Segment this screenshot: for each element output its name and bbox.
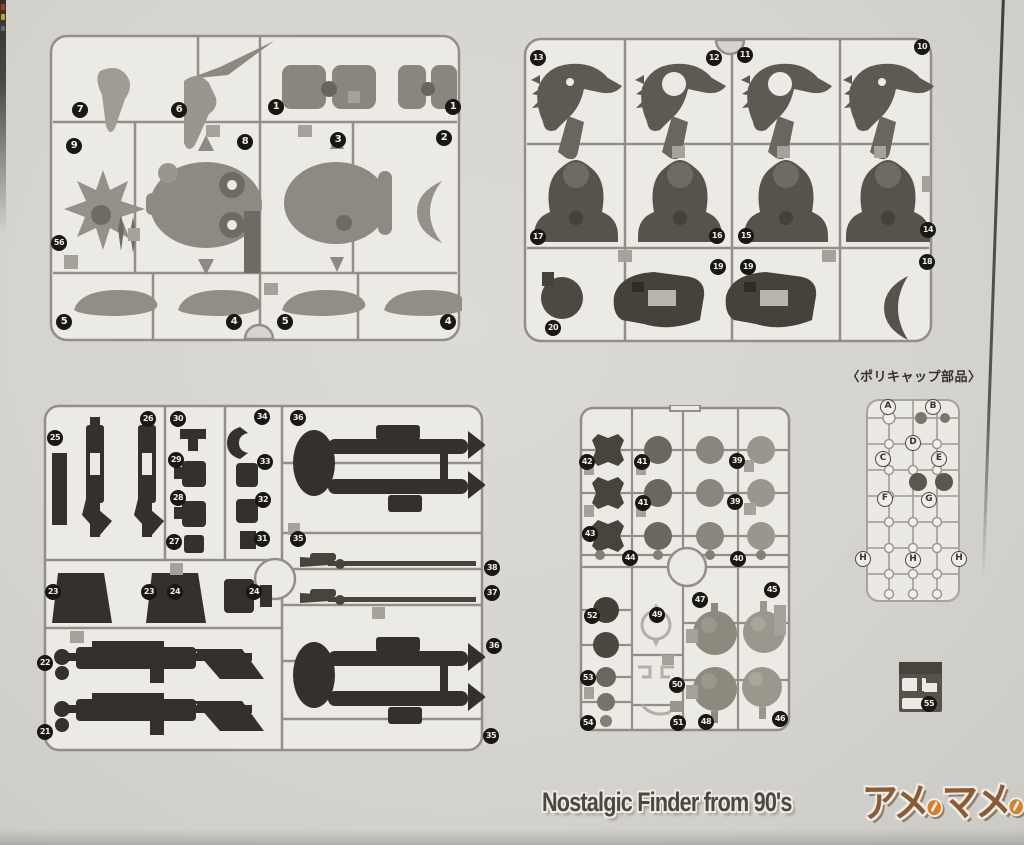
part-number-badge: 34 [254, 409, 270, 425]
part-number-badge: 47 [692, 592, 708, 608]
part-number-badge: 36 [290, 410, 306, 426]
part-number-badge: 10 [914, 39, 930, 55]
part-number-badge: 42 [579, 454, 595, 470]
part-number-badge: 38 [484, 560, 500, 576]
part-number-badge: 32 [255, 492, 271, 508]
part-number-badge: 16 [709, 228, 725, 244]
watermark: Nostalgic Finder from 90's アメ マメ バー [542, 783, 1024, 825]
polycap-letter-badge: B [925, 399, 941, 415]
part-number-badge: 55 [921, 696, 937, 712]
part-number-badge: 56 [51, 235, 67, 251]
part-number-badge: 50 [669, 677, 685, 693]
polycap-letter-badge: D [905, 435, 921, 451]
part-number-badge: 1 [268, 99, 284, 115]
part-number-badge: 35 [290, 531, 306, 547]
part-number-badge: 8 [237, 134, 253, 150]
watermark-logo-segment: マメ [942, 781, 1009, 824]
part-number-badge: 40 [730, 551, 746, 567]
part-number-badge: 1 [445, 99, 461, 115]
part-number-badge: 43 [582, 526, 598, 542]
part-number-badge: 6 [171, 102, 187, 118]
part-number-badge: 17 [530, 229, 546, 245]
part-number-badge: 13 [530, 50, 546, 66]
part-number-badge: 51 [670, 715, 686, 731]
part-number-badge: 4 [440, 314, 456, 330]
part-number-badge: 53 [580, 670, 596, 686]
part-number-badge: 25 [47, 430, 63, 446]
part-number-badge: 45 [764, 582, 780, 598]
part-number-badge: 18 [919, 254, 935, 270]
part-number-badge: 46 [772, 711, 788, 727]
watermark-text: Nostalgic Finder from 90's [542, 787, 792, 825]
part-number-badge: 3 [330, 132, 346, 148]
part-number-badge: 41 [634, 454, 650, 470]
part-number-badge: 27 [166, 534, 182, 550]
watermark-logo: アメ マメ バー [862, 780, 1024, 825]
part-number-badge: 33 [257, 454, 273, 470]
part-number-badge: 39 [727, 494, 743, 510]
part-number-badge: 22 [37, 655, 53, 671]
polycap-letter-badge: H [855, 551, 871, 567]
part-number-badge: 30 [170, 411, 186, 427]
part-number-badge: 26 [140, 411, 156, 427]
part-number-badge: 11 [737, 47, 753, 63]
part-number-badge: 52 [584, 608, 600, 624]
part-number-badge: 23 [141, 584, 157, 600]
part-number-badge: 15 [738, 228, 754, 244]
polycap-letter-badge: E [931, 451, 947, 467]
scanned-instruction-page: 〈ポリキャップ部品〉 [0, 0, 1024, 845]
polycap-letter-badge: G [921, 492, 937, 508]
polycap-letter-badge: H [951, 551, 967, 567]
part-number-badge: 2 [436, 130, 452, 146]
part-number-badge: 24 [167, 584, 183, 600]
part-number-badge: 5 [56, 314, 72, 330]
polycap-letter-badge: F [877, 491, 893, 507]
part-number-badge: 39 [729, 453, 745, 469]
watermark-logo-segment: アメ [862, 782, 927, 825]
part-number-badge: 44 [622, 550, 638, 566]
part-number-badge: 37 [484, 585, 500, 601]
part-number-badge: 24 [246, 584, 262, 600]
polycap-letter-badge: A [880, 399, 896, 415]
part-number-badge: 31 [254, 531, 270, 547]
part-number-badge: 35 [483, 728, 499, 744]
polycap-letter-badge: H [905, 552, 921, 568]
part-number-badge: 14 [920, 222, 936, 238]
part-number-badge: 28 [170, 490, 186, 506]
part-number-badge: 49 [649, 607, 665, 623]
part-number-badge: 23 [45, 584, 61, 600]
part-number-badge: 41 [635, 495, 651, 511]
part-number-badge: 4 [226, 314, 242, 330]
part-number-badge: 29 [168, 452, 184, 468]
part-number-badge: 7 [72, 102, 88, 118]
part-number-badge: 36 [486, 638, 502, 654]
part-number-badge: 19 [710, 259, 726, 275]
badge-overlay: 7611983256545413121110171615141919182025… [0, 0, 1024, 845]
coffee-bean-icon [926, 798, 943, 817]
part-number-badge: 48 [698, 714, 714, 730]
coffee-bean-icon [1008, 797, 1024, 816]
polycap-letter-badge: C [875, 451, 891, 467]
part-number-badge: 20 [545, 320, 561, 336]
part-number-badge: 54 [580, 715, 596, 731]
part-number-badge: 19 [740, 259, 756, 275]
part-number-badge: 9 [66, 138, 82, 154]
part-number-badge: 21 [37, 724, 53, 740]
part-number-badge: 5 [277, 314, 293, 330]
part-number-badge: 12 [706, 50, 722, 66]
